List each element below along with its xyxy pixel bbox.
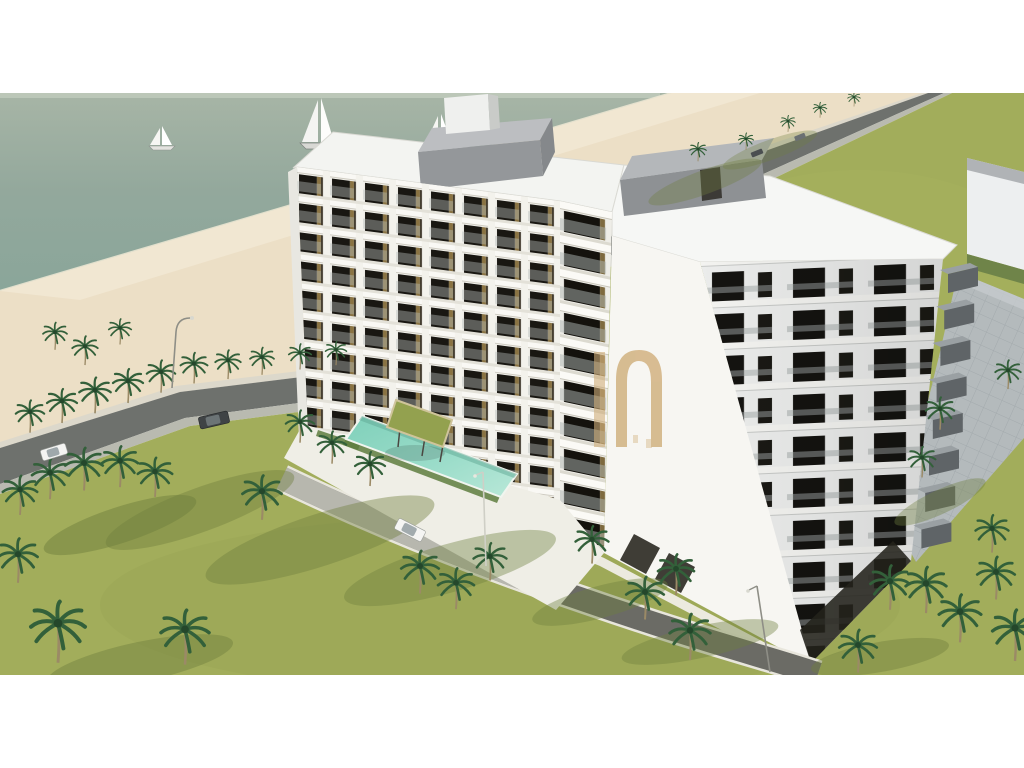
neighbor-building [967, 158, 1024, 284]
far-shore-strip [0, 93, 660, 98]
render-photo: Aerial rendering of a white beachfront a… [0, 0, 1024, 768]
frame-top [0, 0, 1024, 93]
roof-core [444, 94, 490, 134]
watermark-partial-letter [594, 352, 605, 447]
frame-bottom [0, 675, 1024, 768]
